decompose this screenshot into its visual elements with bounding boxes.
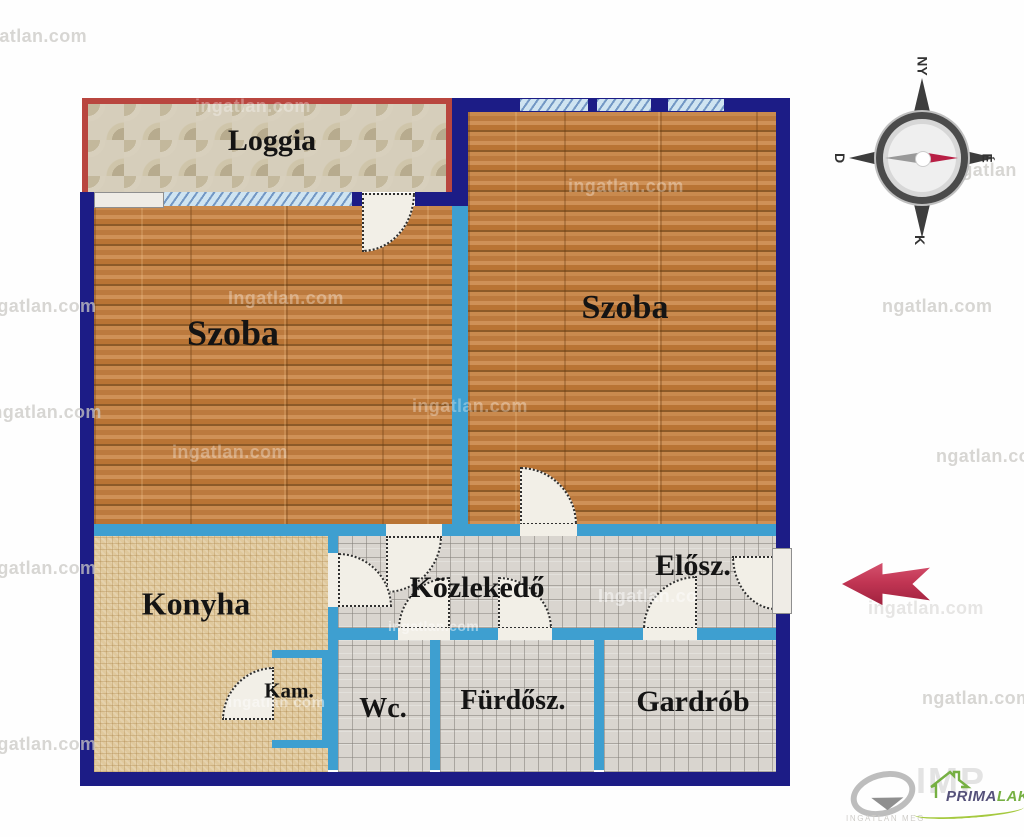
room-label-konyha: Konyha bbox=[142, 586, 250, 623]
compass-hub bbox=[915, 151, 931, 167]
compass-label-north: É bbox=[980, 153, 996, 162]
floor-plan-image: Loggia Szoba Szoba Konyha Közlekedő Elős… bbox=[0, 0, 1024, 837]
room-label-kozlekedo: Közlekedő bbox=[410, 571, 545, 605]
wall-szoba-divider bbox=[452, 206, 468, 524]
gap-gardrob-door bbox=[643, 628, 697, 640]
watermark: ngatlan.com bbox=[936, 446, 1024, 467]
room-label-kamra: Kam. bbox=[264, 679, 314, 704]
room-label-loggia: Loggia bbox=[228, 124, 316, 158]
watermark: ingatlan.com bbox=[868, 598, 984, 619]
entry-door-leaf bbox=[772, 548, 792, 614]
watermark: ngatlan.com bbox=[922, 688, 1024, 709]
wall-post-left bbox=[352, 192, 362, 206]
gap-wc-door bbox=[398, 628, 450, 640]
room-label-furdoszoba: Fürdősz. bbox=[461, 685, 566, 717]
entry-direction-arrow bbox=[842, 560, 930, 608]
window-szoba-right-2 bbox=[597, 99, 651, 111]
gap-szoba1-door bbox=[386, 524, 442, 536]
gap-szoba2-door bbox=[520, 524, 577, 536]
agency-logo-underline bbox=[914, 800, 1024, 822]
compass-point-top bbox=[906, 78, 938, 116]
wall-loggia-junction bbox=[452, 98, 468, 206]
window-szoba-left bbox=[162, 192, 352, 206]
compass-rose: NY D É K bbox=[843, 64, 993, 244]
wall-furdo-gardrob bbox=[594, 640, 604, 770]
window-szoba-right-3 bbox=[668, 99, 724, 111]
compass-label-south: D bbox=[832, 153, 848, 163]
compass-label-west: NY bbox=[915, 56, 931, 75]
room-label-gardrob: Gardrób bbox=[636, 685, 749, 719]
wall-top-left-segment bbox=[415, 192, 452, 206]
room-label-wc: Wc. bbox=[359, 693, 406, 725]
window-szoba-right-1 bbox=[520, 99, 588, 111]
room-label-eloszoba: Elősz. bbox=[655, 549, 731, 583]
compass-point-bottom bbox=[906, 200, 938, 238]
watermark: gatlan.com bbox=[0, 26, 87, 47]
room-label-szoba-right: Szoba bbox=[582, 289, 669, 327]
floor-szoba-left bbox=[94, 206, 452, 524]
agency-logo: PRIMALAK bbox=[920, 768, 1024, 834]
gap-konyha-door bbox=[328, 553, 338, 607]
window-sill-left bbox=[94, 192, 164, 208]
compass-label-east: K bbox=[912, 235, 928, 245]
room-label-szoba-left: Szoba bbox=[187, 312, 279, 354]
outer-wall-right bbox=[776, 98, 790, 786]
outer-wall-left bbox=[80, 192, 94, 786]
gap-furdo-door bbox=[498, 628, 552, 640]
outer-wall-bottom bbox=[80, 772, 790, 786]
wall-wc-furdo bbox=[430, 640, 440, 770]
watermark: ngatlan.com bbox=[882, 296, 992, 317]
